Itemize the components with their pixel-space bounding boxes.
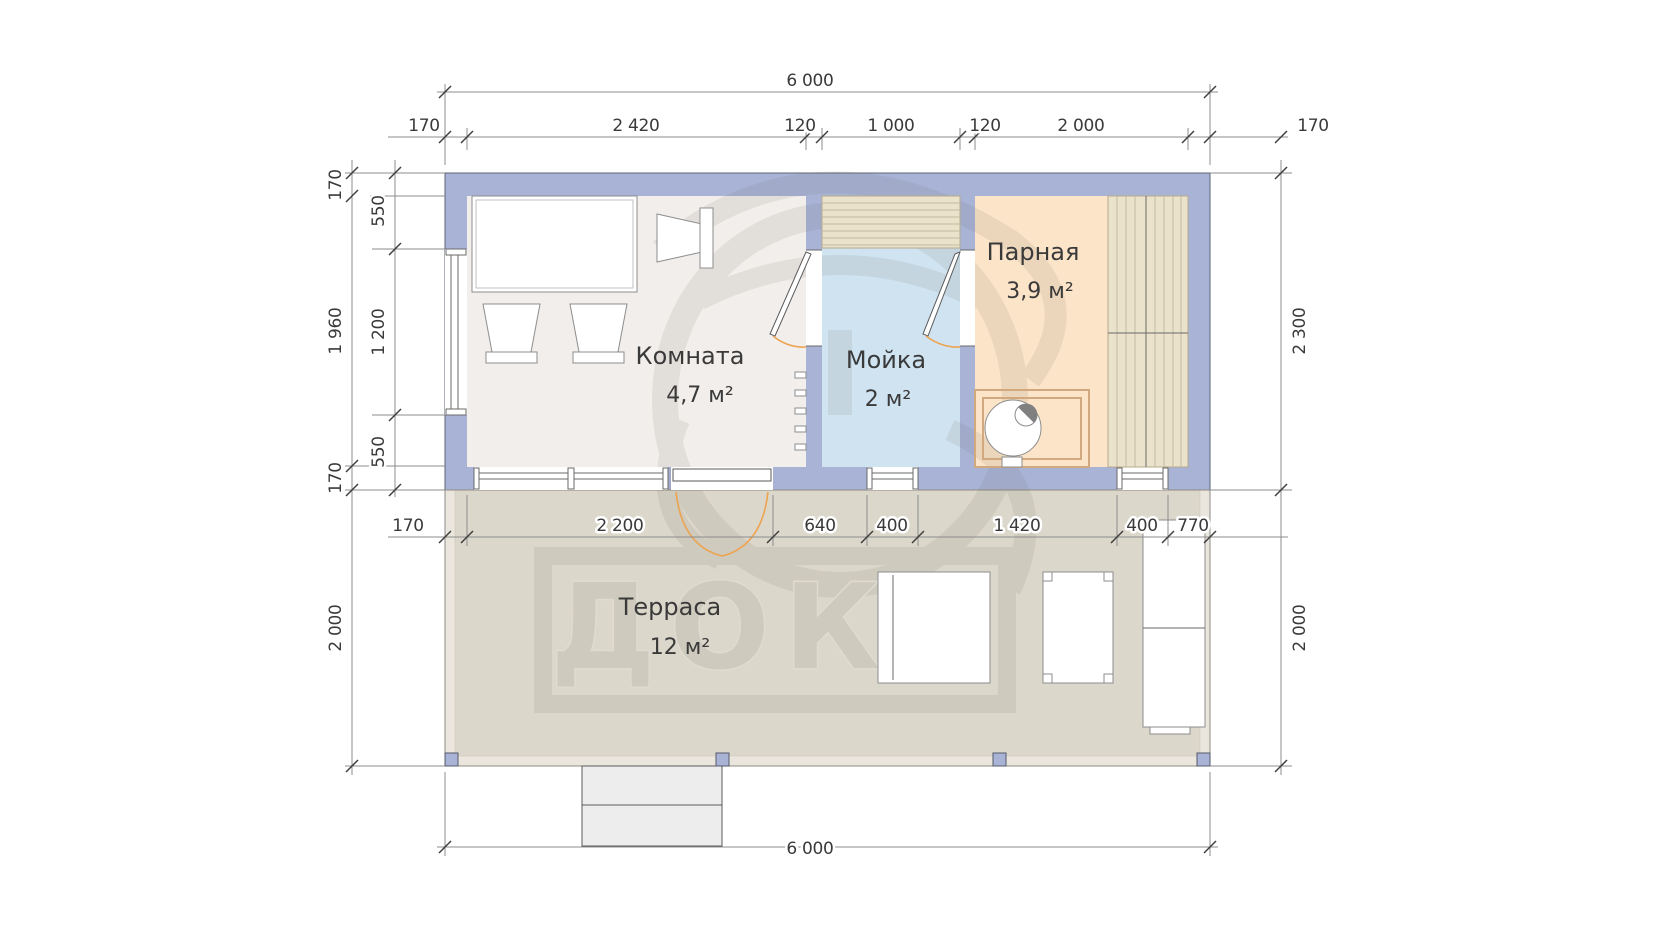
terrace-label: Терраса: [618, 593, 722, 621]
moyka-area: 2 м²: [865, 387, 911, 412]
komnata-label: Комната: [636, 342, 745, 370]
chair: [570, 304, 627, 363]
dim-left-outer-2: 170: [326, 462, 346, 494]
dim-top-5: 2 000: [1057, 116, 1104, 136]
parnaya-south-window: [1117, 467, 1168, 490]
komnata-south-window: [474, 467, 668, 490]
dim-left-outer-1: 1 960: [326, 307, 346, 354]
dim-mid-3: 400: [876, 516, 908, 536]
terrace-chair: [1043, 572, 1113, 683]
chair: [483, 304, 540, 363]
dim-right-0: 2 300: [1290, 307, 1310, 354]
floor-plan-drawing: ДОКА: [0, 0, 1680, 945]
dim-left-inner-1: 1 200: [369, 308, 389, 355]
dim-left-outer-3: 2 000: [326, 604, 346, 651]
dim-top-6: 170: [1297, 116, 1329, 136]
dim-top-0: 170: [408, 116, 440, 136]
dim-mid-1: 2 200: [596, 516, 643, 536]
komnata-area: 4,7 м²: [666, 383, 733, 408]
terrace-lounger: [1143, 520, 1205, 734]
dim-left-inner-2: 550: [369, 436, 389, 468]
dim-mid-4: 1 420: [993, 516, 1040, 536]
moyka-bench-platform: [822, 196, 960, 248]
parnaya-label: Парная: [987, 238, 1080, 266]
dim-top-2: 120: [784, 116, 816, 136]
parnaya-bench: [1108, 196, 1188, 467]
moyka-south-window: [867, 467, 918, 490]
terrace-table: [878, 572, 990, 683]
dim-mid-6: 770: [1177, 516, 1209, 536]
bed: [472, 196, 637, 292]
dim-overall-bottom: 6 000: [786, 839, 833, 859]
parnaya-area: 3,9 м²: [1006, 279, 1073, 304]
terrace-steps: [582, 766, 722, 846]
floor-plan-canvas: ДОКА: [0, 0, 1680, 945]
dim-right-1: 2 000: [1290, 604, 1310, 651]
dim-top-4: 120: [969, 116, 1001, 136]
dim-mid-0: 170: [392, 516, 424, 536]
dim-mid-2: 640: [804, 516, 836, 536]
dim-left-inner-0: 550: [369, 195, 389, 227]
terrace-area: 12 м²: [650, 635, 710, 660]
dim-left-outer-0: 170: [326, 169, 346, 201]
komnata-west-window: [445, 249, 467, 415]
dim-overall-top: 6 000: [786, 71, 833, 91]
dim-top-3: 1 000: [867, 116, 914, 136]
moyka-label: Мойка: [846, 346, 926, 374]
dim-mid-5: 400: [1126, 516, 1158, 536]
dim-top-1: 2 420: [612, 116, 659, 136]
